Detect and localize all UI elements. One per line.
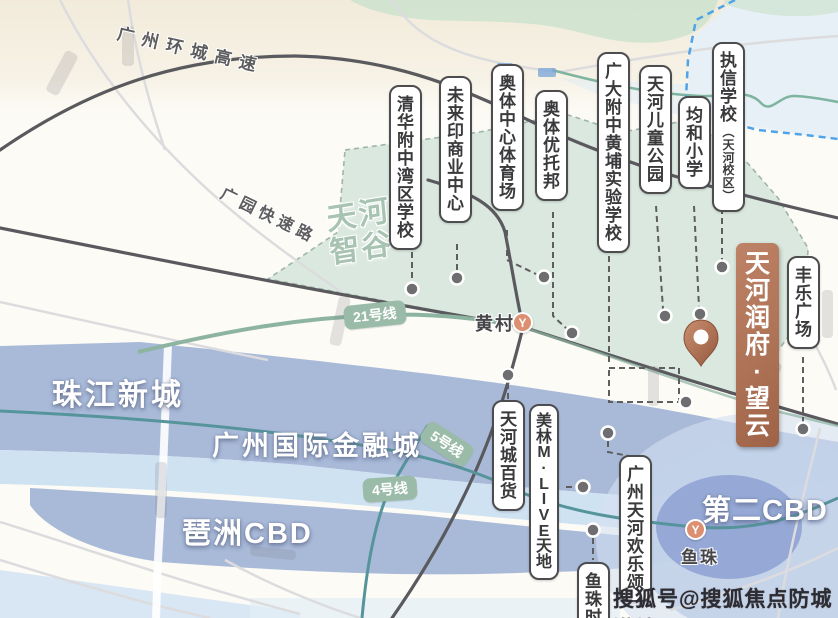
metro-station-icon: Y <box>685 519 706 540</box>
poi-dot <box>716 261 729 274</box>
station-label-huangcun: 黄村 <box>475 310 515 336</box>
bottom-water-strip <box>250 598 620 618</box>
metro-line-4-badge: 4号线 <box>362 475 417 503</box>
poi-label-fengle-plaza: 丰乐广场 <box>787 256 820 349</box>
zone-pazhou-cbd: 琶洲CBD <box>182 510 313 552</box>
poi-label-mlive: 美林M·LIVE天地 <box>529 404 559 580</box>
poi-label-junhe-school: 均和小学 <box>678 96 711 189</box>
poi-label-zhixin-school: 执信学校 ︵天河校区︶ <box>712 42 745 212</box>
poi-dot <box>577 481 590 494</box>
poi-dot <box>451 272 464 285</box>
poi-dot <box>602 427 615 440</box>
zone-financial-city: 广州国际金融城 <box>212 424 422 463</box>
poi-dot <box>566 327 579 340</box>
zone-smart-valley: 天河智谷 <box>322 193 399 270</box>
zone-second-cbd: 第二CBD <box>702 487 828 529</box>
location-map: 广州环城高速 广园快速路 天河智谷 珠江新城 广州国际金融城 琶洲CBD 第二C… <box>0 0 838 618</box>
poi-label-happy-valley: 广州天河欢乐颂 <box>619 455 652 602</box>
poi-label-qinghua-school: 清华附中湾区学校 <box>389 85 422 250</box>
poi-dot <box>538 271 551 284</box>
project-name-box: 天河润府·望云 <box>736 243 779 447</box>
poi-dot <box>694 308 707 321</box>
poi-label-children-park: 天河儿童公园 <box>639 65 672 194</box>
road-label-smudge <box>648 366 659 406</box>
highway-shield-icon <box>538 68 556 77</box>
road-label-smudge <box>155 462 167 518</box>
poi-dot <box>797 423 810 436</box>
poi-dot <box>406 283 419 296</box>
poi-dot <box>502 369 515 382</box>
poi-dot <box>587 524 600 537</box>
metro-station-icon: Y <box>512 312 533 333</box>
poi-dot <box>680 396 693 409</box>
watermark: 搜狐号@搜狐焦点防城港站 <box>613 583 838 618</box>
poi-label-aoti-stadium: 奥体中心体育场 <box>491 64 524 211</box>
zone-zhujiang-new-town: 珠江新城 <box>52 370 184 414</box>
poi-label-yuzhu-times: 鱼珠时代 <box>577 562 610 618</box>
poi-dot <box>659 310 672 323</box>
road-label-smudge <box>822 290 833 338</box>
poi-label-aoti-utopa: 奥体优托邦 <box>535 90 568 201</box>
station-label-yuzhu: 鱼珠 <box>681 543 719 568</box>
poi-label-weilaiyin-mall: 未来印商业中心 <box>439 76 472 223</box>
poi-label-guangda-school: 广大附中黄埔实验学校 <box>597 52 630 253</box>
poi-label-teemall: 天河城百货 <box>492 400 525 511</box>
